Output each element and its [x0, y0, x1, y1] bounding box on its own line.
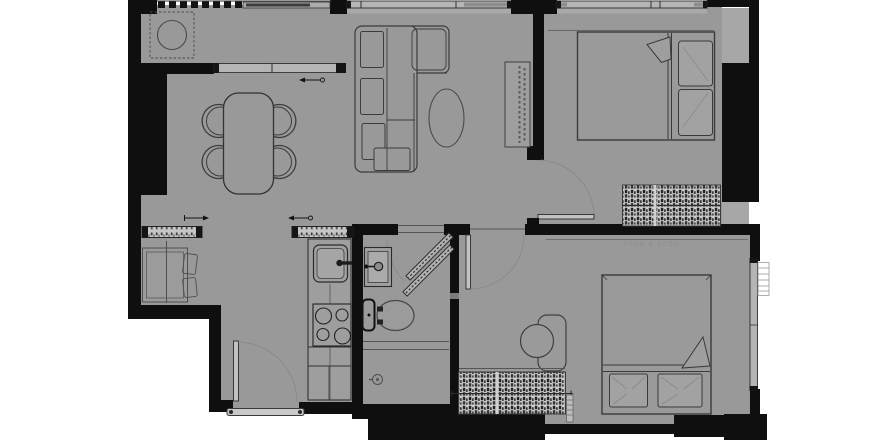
svg-text:3750 x 3050: 3750 x 3050	[623, 239, 680, 248]
